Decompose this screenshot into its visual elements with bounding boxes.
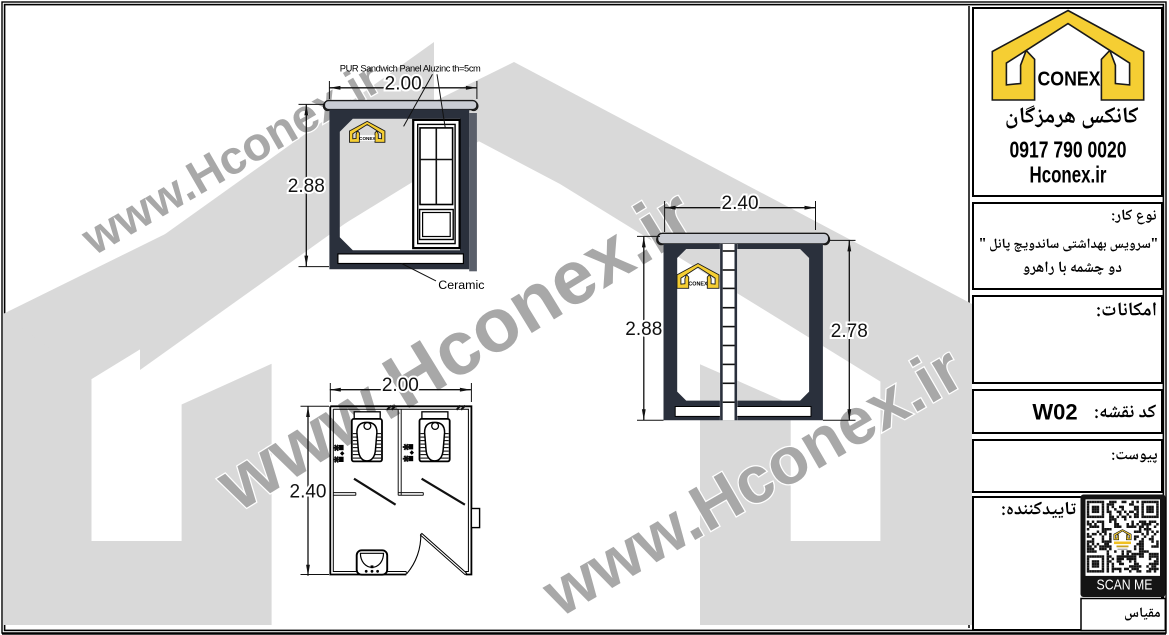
svg-text:CONEX: CONEX xyxy=(359,136,376,141)
svg-text:0917 790 0020: 0917 790 0020 xyxy=(1010,137,1127,163)
svg-text:Hconex.ir: Hconex.ir xyxy=(1030,162,1107,188)
svg-text:PUR Sandwich Panel Aluzinc th: PUR Sandwich Panel Aluzinc th=5cm xyxy=(340,64,481,74)
svg-text:2.78: 2.78 xyxy=(831,321,868,342)
svg-text:SCAN ME: SCAN ME xyxy=(1097,578,1153,594)
svg-text:2.00: 2.00 xyxy=(382,375,419,396)
svg-text:Ceramic: Ceramic xyxy=(438,278,484,292)
svg-text:CONEX: CONEX xyxy=(688,281,708,287)
svg-text:2.88: 2.88 xyxy=(288,176,325,197)
svg-text:2.88: 2.88 xyxy=(625,319,662,340)
svg-text:2.00: 2.00 xyxy=(385,73,422,94)
svg-text:2.40: 2.40 xyxy=(722,193,759,214)
svg-text:CONEX: CONEX xyxy=(1038,69,1102,91)
svg-text:W02: W02 xyxy=(1032,400,1077,425)
svg-text:2.40: 2.40 xyxy=(290,481,327,502)
